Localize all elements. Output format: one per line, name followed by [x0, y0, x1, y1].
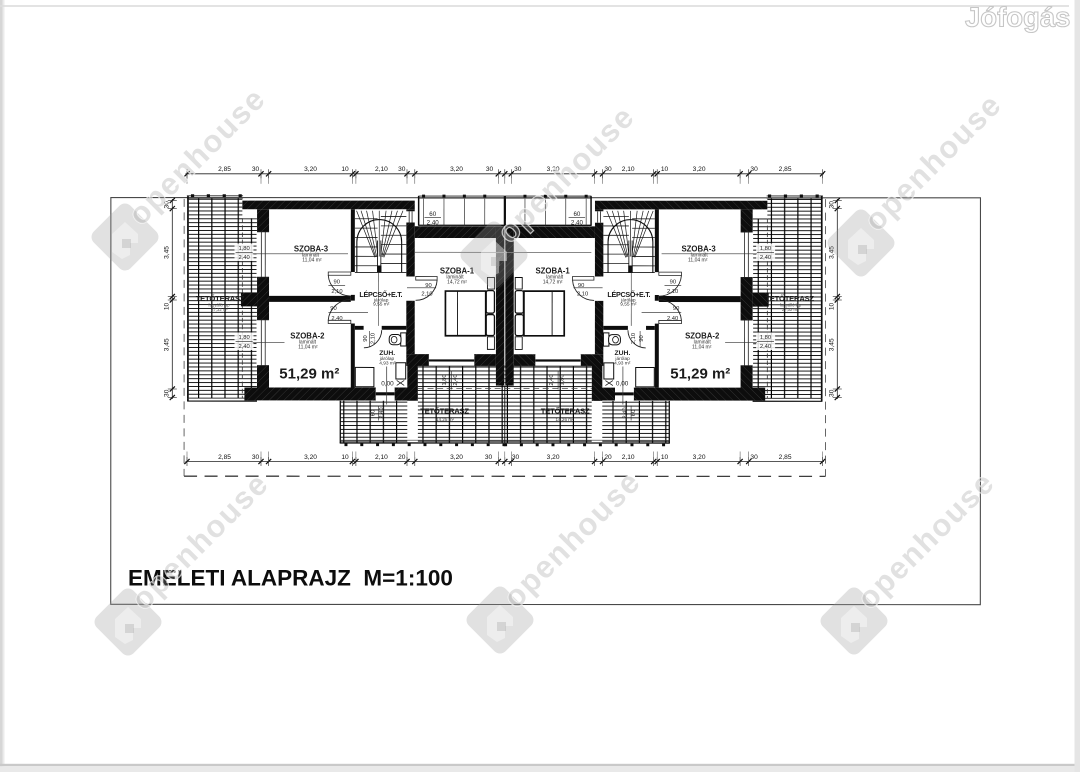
svg-text:27,32 m²: 27,32 m²: [211, 307, 228, 312]
svg-text:90: 90: [673, 306, 679, 312]
svg-text:14,25 m²: 14,25 m²: [436, 417, 455, 422]
svg-text:11,04 m²: 11,04 m²: [692, 344, 712, 350]
svg-text:2,40: 2,40: [571, 220, 584, 227]
svg-text:11,04 m²: 11,04 m²: [302, 258, 322, 264]
svg-text:3,20: 3,20: [693, 454, 706, 461]
svg-text:3,20: 3,20: [304, 166, 317, 173]
svg-text:51,29 m²: 51,29 m²: [279, 366, 339, 383]
svg-text:3,20: 3,20: [693, 166, 706, 173]
svg-text:3,20: 3,20: [450, 166, 463, 173]
svg-text:14,26 m²: 14,26 m²: [556, 417, 575, 422]
svg-text:9,55 m²: 9,55 m²: [620, 302, 637, 308]
svg-text:2,85: 2,85: [218, 454, 231, 461]
svg-text:11,04 m²: 11,04 m²: [688, 258, 708, 264]
svg-text:10: 10: [828, 303, 835, 311]
svg-text:2,10: 2,10: [622, 166, 635, 173]
svg-text:30: 30: [512, 454, 520, 461]
svg-text:2,40: 2,40: [549, 374, 555, 385]
svg-text:27,32 m²: 27,32 m²: [782, 307, 799, 312]
svg-text:LÉPCSŐ+E.T.: LÉPCSŐ+E.T.: [359, 290, 402, 299]
svg-text:2,40: 2,40: [622, 407, 628, 418]
svg-text:2,40: 2,40: [760, 255, 771, 261]
svg-text:90: 90: [670, 279, 676, 285]
svg-text:10: 10: [341, 166, 349, 173]
svg-text:2,10: 2,10: [631, 333, 637, 344]
svg-text:60: 60: [573, 211, 580, 218]
svg-text:Jófogás: Jófogás: [965, 2, 1070, 33]
svg-text:10: 10: [661, 454, 669, 461]
svg-text:2,10: 2,10: [622, 454, 635, 461]
svg-text:90: 90: [639, 335, 645, 341]
svg-text:9,55 m²: 9,55 m²: [373, 302, 390, 308]
svg-text:60: 60: [631, 410, 637, 416]
svg-text:30: 30: [750, 166, 758, 173]
svg-text:30: 30: [828, 201, 835, 209]
svg-text:14,72 m²: 14,72 m²: [543, 279, 563, 285]
svg-text:0,00: 0,00: [381, 380, 394, 387]
svg-text:1,80: 1,80: [238, 246, 249, 252]
svg-text:2,40: 2,40: [760, 344, 771, 350]
svg-text:4,93 m²: 4,93 m²: [614, 361, 631, 367]
svg-text:2,10: 2,10: [375, 454, 388, 461]
svg-text:2,40: 2,40: [331, 316, 342, 322]
svg-text:30: 30: [163, 389, 170, 397]
svg-text:30: 30: [514, 166, 522, 173]
svg-text:2,40: 2,40: [453, 374, 459, 385]
svg-text:30: 30: [485, 454, 493, 461]
svg-text:1,80: 1,80: [760, 246, 771, 252]
svg-text:2,40: 2,40: [667, 316, 678, 322]
svg-text:2,10: 2,10: [421, 291, 432, 297]
svg-text:30: 30: [604, 166, 612, 173]
svg-text:90: 90: [363, 335, 369, 341]
svg-text:1,80: 1,80: [238, 335, 249, 341]
svg-text:2,10: 2,10: [667, 289, 678, 295]
svg-text:30: 30: [252, 166, 260, 173]
svg-text:2,85: 2,85: [218, 166, 231, 173]
svg-text:90: 90: [330, 306, 336, 312]
svg-text:TETŐTERASZ: TETŐTERASZ: [541, 406, 590, 415]
svg-text:3,20: 3,20: [450, 454, 463, 461]
svg-text:3,45: 3,45: [828, 338, 835, 351]
svg-text:30: 30: [252, 454, 260, 461]
svg-text:30: 30: [828, 389, 835, 397]
svg-text:LÉPCSŐ+E.T.: LÉPCSŐ+E.T.: [607, 290, 650, 299]
svg-text:90: 90: [333, 279, 339, 285]
svg-text:TETŐTERASZ: TETŐTERASZ: [420, 406, 469, 415]
svg-text:51,29 m²: 51,29 m²: [670, 366, 730, 383]
svg-text:4,93 m²: 4,93 m²: [379, 361, 396, 367]
svg-text:30: 30: [750, 454, 758, 461]
svg-text:2,10: 2,10: [577, 291, 588, 297]
svg-text:2,85: 2,85: [779, 166, 792, 173]
svg-text:2,10: 2,10: [375, 166, 388, 173]
svg-text:2,10: 2,10: [331, 289, 342, 295]
svg-text:1,80: 1,80: [442, 374, 448, 385]
svg-text:30: 30: [486, 166, 494, 173]
svg-text:2,40: 2,40: [379, 407, 385, 418]
svg-text:60: 60: [371, 410, 377, 416]
svg-text:1,80: 1,80: [760, 335, 771, 341]
svg-text:3,45: 3,45: [163, 246, 170, 259]
svg-text:10: 10: [341, 454, 349, 461]
svg-text:2,10: 2,10: [371, 333, 377, 344]
svg-text:0,00: 0,00: [616, 380, 629, 387]
svg-text:1,80: 1,80: [559, 374, 565, 385]
svg-text:20: 20: [398, 454, 406, 461]
svg-text:2,40: 2,40: [238, 344, 249, 350]
svg-text:20: 20: [604, 454, 612, 461]
svg-text:3,20: 3,20: [547, 454, 560, 461]
svg-text:ZUH.: ZUH.: [379, 350, 395, 357]
svg-text:10: 10: [661, 166, 669, 173]
svg-text:2,40: 2,40: [427, 220, 440, 227]
svg-text:ZUH.: ZUH.: [614, 350, 630, 357]
svg-text:3,20: 3,20: [304, 454, 317, 461]
svg-text:14,72 m²: 14,72 m²: [447, 279, 467, 285]
svg-text:2,40: 2,40: [238, 255, 249, 261]
svg-text:10: 10: [163, 303, 170, 311]
svg-text:11,04 m²: 11,04 m²: [298, 344, 318, 350]
svg-text:2,85: 2,85: [779, 454, 792, 461]
svg-text:30: 30: [398, 166, 406, 173]
svg-text:60: 60: [429, 211, 436, 218]
svg-text:3,45: 3,45: [163, 338, 170, 351]
